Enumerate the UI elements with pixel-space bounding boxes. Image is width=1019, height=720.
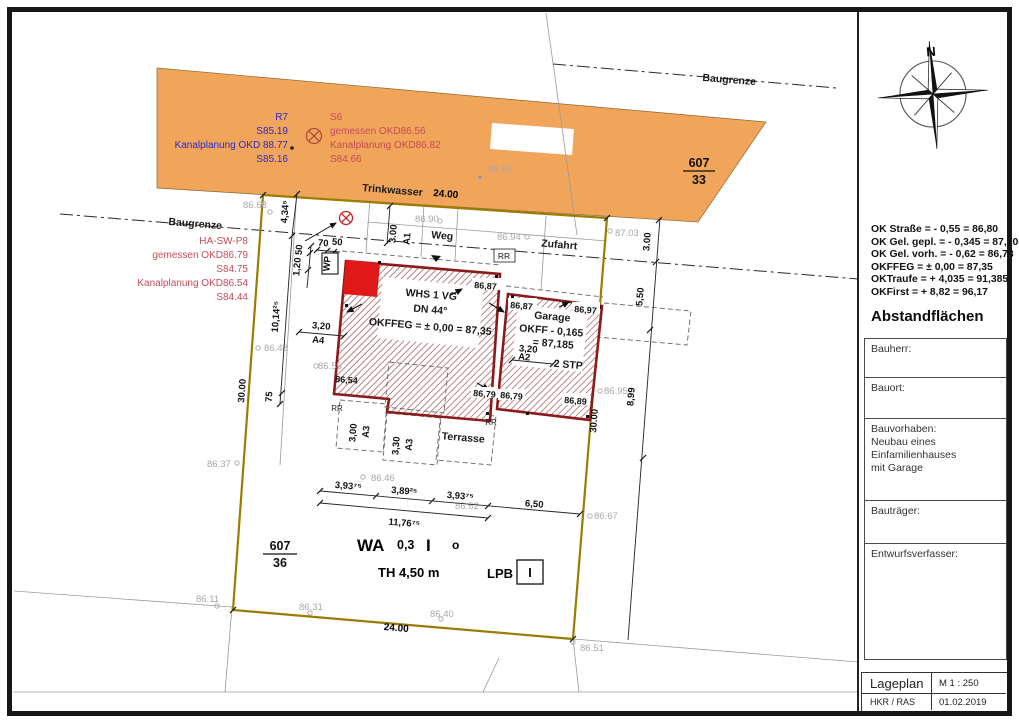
dim-label: 11,76⁷⁵ bbox=[388, 517, 420, 531]
note-red: S6 bbox=[330, 112, 343, 123]
baugrenze-label-top: Baugrenze bbox=[702, 72, 757, 88]
zone-ratio: 0,3 bbox=[397, 538, 414, 552]
level-line: OKFirst = + 8,82 = 96,17 bbox=[871, 287, 1019, 300]
dim-label: 3,89²⁵ bbox=[391, 485, 418, 498]
bautraeger-label: Bauträger: bbox=[871, 505, 920, 517]
dim-label: A2 bbox=[518, 352, 531, 364]
zone-lpb: LPB bbox=[487, 566, 513, 581]
dim-label: 30.00 bbox=[588, 409, 601, 433]
lpb-value: I bbox=[528, 566, 531, 580]
panel-divider bbox=[857, 10, 859, 712]
drawing-scale: M 1 : 250 bbox=[931, 673, 1006, 694]
dim-label: 24.00 bbox=[383, 622, 409, 635]
rr-label: RR bbox=[485, 418, 497, 427]
parcel-36-number: 607 bbox=[270, 539, 291, 553]
bauort-label: Bauort: bbox=[871, 382, 905, 394]
elevation-gray: 86.46 bbox=[371, 473, 395, 484]
parcel-36-denominator: 36 bbox=[273, 556, 287, 570]
project-info-table: Bauherr: Bauort: Bauvorhaben: Neubau ein… bbox=[864, 338, 1007, 660]
dim-label: 3,00 bbox=[347, 423, 359, 442]
dim-label: 3,20 bbox=[312, 320, 331, 332]
dim-label: 50 bbox=[294, 244, 306, 255]
bauvorhaben-label: Bauvorhaben: bbox=[871, 423, 1000, 436]
zone-storeys: I bbox=[426, 536, 431, 555]
elevation-black: 86,79 bbox=[500, 390, 523, 402]
level-line: OKFFEG = ± 0,00 = 87,35 bbox=[871, 262, 1019, 275]
elevation-gray: 86.37 bbox=[207, 459, 231, 470]
elevation-gray: 86.90 bbox=[415, 214, 439, 225]
dim-label: 3,93⁷⁵ bbox=[446, 490, 474, 503]
north-arrow-icon: N bbox=[874, 37, 991, 152]
elevation-black: 86,97 bbox=[574, 304, 597, 316]
dim-label: 3,30 bbox=[390, 436, 402, 455]
house-red-block bbox=[343, 260, 380, 297]
left-utility-notes: HA-SW-P8 gemessen OKD86.79 S84.75 Kanalp… bbox=[137, 236, 248, 303]
level-list: OK Straße = - 0,55 = 86,80 OK Gel. gepl.… bbox=[871, 224, 1019, 300]
garage-parking: 2 STP bbox=[553, 358, 583, 372]
dim-label: 6,50 bbox=[525, 498, 544, 510]
lageplan-sheet: Baugrenze Baugrenze WHS 1 VG DN 44° OKFF… bbox=[0, 0, 1019, 720]
note-red: Kanalplanung OKD86.82 bbox=[330, 140, 441, 151]
dim-label: 75 bbox=[264, 390, 276, 402]
dim-label: 3.00 bbox=[387, 224, 399, 243]
baugrenze-label-left: Baugrenze bbox=[168, 216, 223, 232]
dim-label: 10,14²⁵ bbox=[270, 301, 284, 333]
bauvorhaben-text: mit Garage bbox=[871, 462, 1000, 475]
note-red: gemessen OKD86.79 bbox=[152, 250, 248, 261]
note-red: Kanalplanung OKD86.54 bbox=[137, 278, 248, 289]
elevation-gray: 86.55 bbox=[318, 361, 342, 372]
north-label: N bbox=[926, 44, 936, 60]
triangle-marker-icon bbox=[431, 255, 441, 262]
zone-open: o bbox=[452, 538, 459, 552]
rr-label: RR bbox=[331, 404, 343, 413]
table-row-bautraeger: Bauträger: bbox=[865, 501, 1006, 544]
entwurfsverfasser-label: Entwurfsverfasser: bbox=[871, 548, 958, 560]
elevation-black: 86,54 bbox=[335, 374, 358, 386]
elevation-black: 86,87 bbox=[510, 300, 533, 312]
drawing-title: Lageplan bbox=[862, 673, 931, 694]
dim-label: A1 bbox=[402, 232, 414, 246]
note-blue: S85.19 bbox=[256, 126, 288, 137]
note-red: HA-SW-P8 bbox=[199, 236, 248, 247]
note-red: S84.44 bbox=[216, 292, 248, 303]
elevation-gray: 86.82 bbox=[488, 164, 512, 175]
table-row-entwurfsverfasser: Entwurfsverfasser: bbox=[865, 544, 1006, 654]
dim-label: 8,99 bbox=[625, 387, 637, 406]
dim-label: 3,93⁷⁵ bbox=[334, 480, 362, 493]
level-line: OK Gel. vorh. = - 0,62 = 86,73 bbox=[871, 249, 1019, 262]
drawing-initials: HKR / RAS bbox=[862, 694, 931, 710]
elevation-gray: 86.67 bbox=[594, 511, 618, 522]
note-blue: Kanalplanung OKD 88.77 bbox=[175, 140, 289, 151]
note-red: S84.66 bbox=[330, 154, 362, 165]
bauherr-label: Bauherr: bbox=[871, 343, 911, 355]
dim-24-top-street: 24.00 bbox=[433, 188, 459, 201]
elevation-gray: 86.40 bbox=[430, 609, 454, 620]
dim-label: 3.00 bbox=[641, 232, 653, 251]
zufahrt-label: Zufahrt bbox=[541, 238, 579, 253]
level-line: OK Straße = - 0,55 = 86,80 bbox=[871, 224, 1019, 237]
dim-label: A3 bbox=[361, 425, 373, 438]
wp-label: WP bbox=[321, 255, 333, 272]
dim-label: 5,50 bbox=[634, 287, 646, 306]
elevation-gray: 86.95 bbox=[604, 386, 628, 397]
terrasse-label: Terrasse bbox=[441, 430, 485, 445]
elevation-gray: 86.68 bbox=[243, 200, 267, 211]
note-blue: S85.16 bbox=[256, 154, 288, 165]
elevation-gray: 86.94 bbox=[497, 232, 521, 243]
table-row-bauherr: Bauherr: bbox=[865, 339, 1006, 378]
zone-th: TH 4,50 m bbox=[378, 565, 439, 580]
dim-label: A4 bbox=[312, 335, 326, 347]
drawing-date: 01.02.2019 bbox=[931, 694, 1006, 710]
sewer-symbol-plot-icon bbox=[340, 212, 353, 225]
elevation-gray: 86.51 bbox=[580, 643, 604, 654]
title-block: Lageplan M 1 : 250 HKR / RAS 01.02.2019 bbox=[861, 672, 1008, 712]
table-row-bauvorhaben: Bauvorhaben: Neubau eines Einfamilienhau… bbox=[865, 419, 1006, 501]
note-blue: R7 bbox=[275, 112, 288, 123]
table-row-bauort: Bauort: bbox=[865, 378, 1006, 419]
zoning-designation: 607 36 WA 0,3 I o TH 4,50 m LPB I bbox=[263, 536, 543, 584]
elevation-black: 86,89 bbox=[564, 395, 587, 407]
level-line: OK Gel. gepl. = - 0,345 = 87,005 bbox=[871, 237, 1019, 250]
elevation-gray: 86.11 bbox=[196, 594, 219, 605]
abstandflaechen-title: Abstandflächen bbox=[871, 308, 984, 325]
dim-label: A3 bbox=[404, 438, 416, 451]
elevation-black: 86,87 bbox=[474, 280, 497, 292]
level-line: OKTraufe = + 4,035 = 91,385 bbox=[871, 274, 1019, 287]
note-red: gemessen OKD86.56 bbox=[330, 126, 426, 137]
survey-dot bbox=[290, 146, 294, 150]
dim-label: 30.00 bbox=[236, 379, 249, 403]
note-red: S84.75 bbox=[216, 264, 248, 275]
elevation-gray: 87.03 bbox=[615, 228, 639, 239]
dim-label: 1,20 bbox=[291, 257, 303, 276]
rr-label: RR bbox=[498, 251, 510, 261]
elevation-gray: 86.62 bbox=[455, 501, 479, 512]
dim-label: 50 bbox=[331, 237, 342, 249]
dim-label: 4,34⁵ bbox=[279, 200, 292, 224]
elevation-black: 86,79 bbox=[473, 388, 496, 400]
survey-marker bbox=[478, 176, 482, 179]
zone-wa: WA bbox=[357, 536, 384, 555]
bauvorhaben-text: Neubau eines Einfamilienhauses bbox=[871, 436, 1000, 462]
weg-label: Weg bbox=[431, 229, 454, 243]
parcel-33-denominator: 33 bbox=[692, 173, 706, 187]
dim-label: 70 bbox=[317, 238, 328, 250]
parcel-33-number: 607 bbox=[689, 156, 710, 170]
